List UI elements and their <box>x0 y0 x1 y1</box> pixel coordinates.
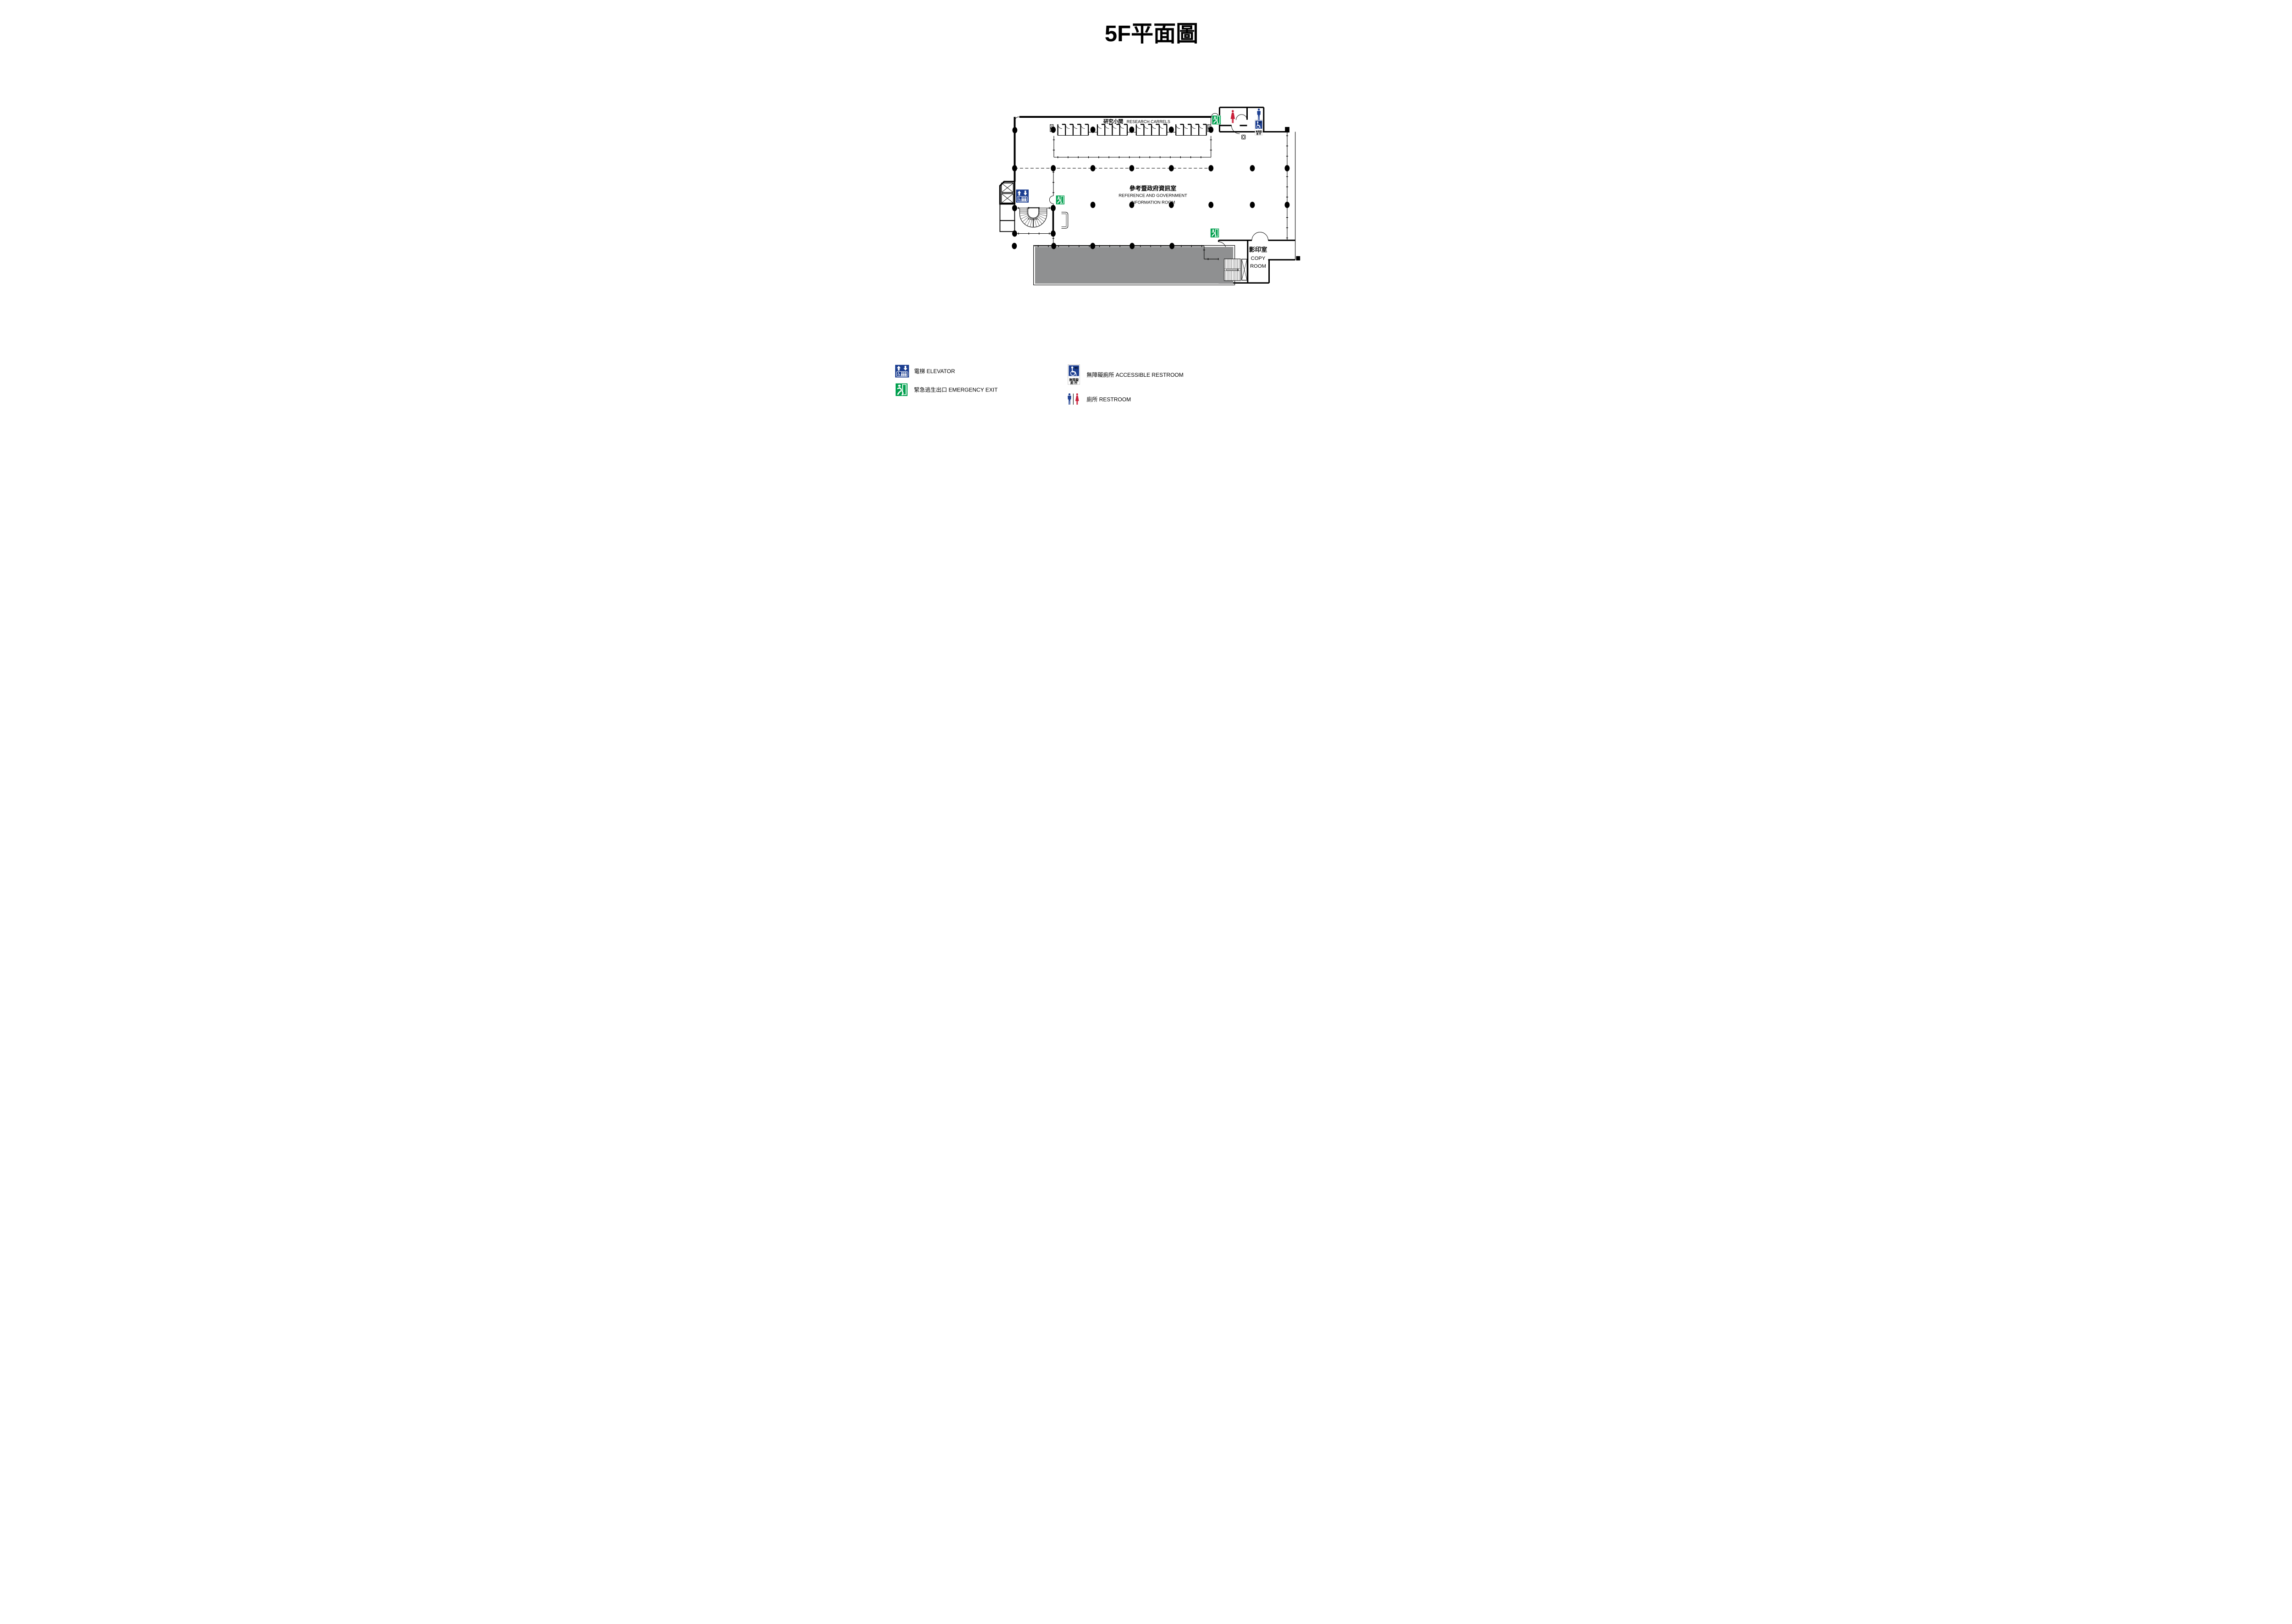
carrel-door-arc <box>1120 124 1124 128</box>
elevator-shaft-2 <box>1002 193 1014 203</box>
emergency-exit-icon <box>1210 228 1219 238</box>
carrel-door-arc <box>1184 124 1188 128</box>
accessible-restroom-icon <box>1068 364 1080 385</box>
column-dot <box>1169 243 1174 249</box>
restroom-icon <box>1068 393 1079 405</box>
column-dot <box>1208 202 1213 208</box>
carrel-door-arc <box>1144 124 1148 128</box>
carrel-door-arc <box>1073 124 1077 128</box>
copy-room-zh: 影印室 <box>1249 246 1267 253</box>
column-square <box>1296 256 1300 260</box>
stair-tread <box>1039 214 1047 216</box>
column-dot <box>1051 231 1056 237</box>
legend-label-elevator: 電梯 ELEVATOR <box>914 368 955 374</box>
column-dot <box>1012 165 1017 171</box>
column-dot <box>1090 243 1095 249</box>
floor-plan-canvas: WC 無障礙 廁 所 5F平面圖 <box>792 0 1500 425</box>
column-dot <box>1285 202 1290 208</box>
column-dot <box>1051 205 1056 211</box>
column-dot <box>1129 127 1135 133</box>
carrel-door-arc <box>1113 124 1117 128</box>
carrel-door-arc <box>1199 124 1203 128</box>
column-dot <box>1129 165 1135 171</box>
curved-staircase <box>1019 208 1047 227</box>
reference-room-en2: INFORMATION ROOM <box>1131 200 1175 205</box>
column-dot <box>1285 165 1290 171</box>
urinal-fixture <box>1242 135 1245 139</box>
page-title: 5F平面圖 <box>1105 22 1198 46</box>
column-dot <box>1012 243 1017 249</box>
column-dot <box>1012 231 1017 237</box>
carrel-group <box>1176 124 1207 135</box>
legend-label-accessible-restroom: 無障礙廁所 ACCESSIBLE RESTROOM <box>1086 371 1183 378</box>
research-carrels-zh: 研究小間 <box>1103 118 1123 125</box>
stair-tread <box>1025 217 1030 224</box>
carrel-door-arc <box>1136 124 1140 128</box>
column-dot <box>1169 165 1174 171</box>
column-dot <box>1129 243 1135 249</box>
carrel-door-arc <box>1191 124 1196 128</box>
column-dot <box>1013 127 1018 133</box>
emergency-exit-icon <box>1056 195 1065 205</box>
column-dot <box>1250 165 1255 171</box>
column-dot <box>1051 127 1056 133</box>
column-dot <box>1012 205 1017 211</box>
emergency-exit-icon <box>1212 116 1222 125</box>
copy-room-en1: COPY <box>1251 256 1266 261</box>
reference-room-zh: 參考暨政府資訊室 <box>1129 185 1177 192</box>
floor-plan-page: WC 無障礙 廁 所 5F平面圖 <box>792 0 1500 425</box>
restroom-block-walls <box>1219 107 1289 132</box>
stair-tread <box>1037 217 1042 224</box>
straight-staircase <box>1224 259 1247 281</box>
accessible-restroom-icon <box>1255 120 1263 136</box>
bench <box>1062 212 1068 228</box>
female-restroom-icon <box>1231 110 1235 123</box>
elevator-shaft-1 <box>1002 183 1014 192</box>
carrel-door-arc <box>1159 124 1163 128</box>
reference-room-en1: REFERENCE AND GOVERNMENT <box>1118 193 1187 198</box>
column-dot <box>1208 127 1213 133</box>
stair-handrail <box>1027 208 1040 219</box>
carrel-door-arc <box>1152 124 1156 128</box>
copy-room-label: 影印室 COPY ROOM <box>1249 246 1267 269</box>
emergency-exit-icon <box>895 383 908 396</box>
legend-label-emergency-exit: 緊急逃生出口 EMERGENCY EXIT <box>914 386 998 393</box>
column-dot <box>1051 243 1056 249</box>
male-restroom-icon <box>1257 109 1261 120</box>
carrel-door-arc <box>1097 124 1102 128</box>
column-dot <box>1051 165 1056 171</box>
legend-label-restroom: 廁所 RESTROOM <box>1086 396 1131 403</box>
elevator-sign-icon <box>895 365 909 378</box>
carrel-door-arc <box>1176 124 1180 128</box>
elevator-sign-icon <box>1016 190 1029 203</box>
carrel-door-arc <box>1058 124 1062 128</box>
column-square <box>1285 127 1289 132</box>
carrel-door-arc <box>1081 124 1085 128</box>
column-dot <box>1091 127 1096 133</box>
structural-columns-square <box>1207 127 1300 262</box>
copy-room-en2: ROOM <box>1250 264 1266 269</box>
column-dot <box>1091 202 1096 208</box>
column-dot <box>1250 202 1255 208</box>
terrace-area <box>1035 247 1233 284</box>
stair-tread <box>1038 216 1044 222</box>
stair-tread <box>1038 215 1046 219</box>
service-room-2 <box>1000 220 1014 231</box>
column-dot <box>1091 165 1096 171</box>
service-room-1 <box>1000 204 1014 220</box>
column-dot <box>1169 127 1174 133</box>
stair-outline <box>1224 259 1240 281</box>
research-carrels-en: RESEARCH CARRELS <box>1127 120 1170 124</box>
carrel-door-arc <box>1065 124 1069 128</box>
reference-room-label: 參考暨政府資訊室 REFERENCE AND GOVERNMENT INFORM… <box>1118 185 1187 205</box>
stair-inner-edge <box>1028 208 1038 218</box>
carrel-door-arc <box>1105 124 1109 128</box>
stair-tread <box>1021 215 1029 219</box>
column-dot <box>1208 165 1213 171</box>
stairwell-door-arcs <box>1049 196 1053 204</box>
stair-tread <box>1020 214 1028 216</box>
research-carrels-label: 研究小間 RESEARCH CARRELS <box>1103 117 1170 125</box>
legend: 電梯 ELEVATOR 緊急逃生出口 EMERGENCY EXIT 無障礙廁所 … <box>895 364 1184 405</box>
